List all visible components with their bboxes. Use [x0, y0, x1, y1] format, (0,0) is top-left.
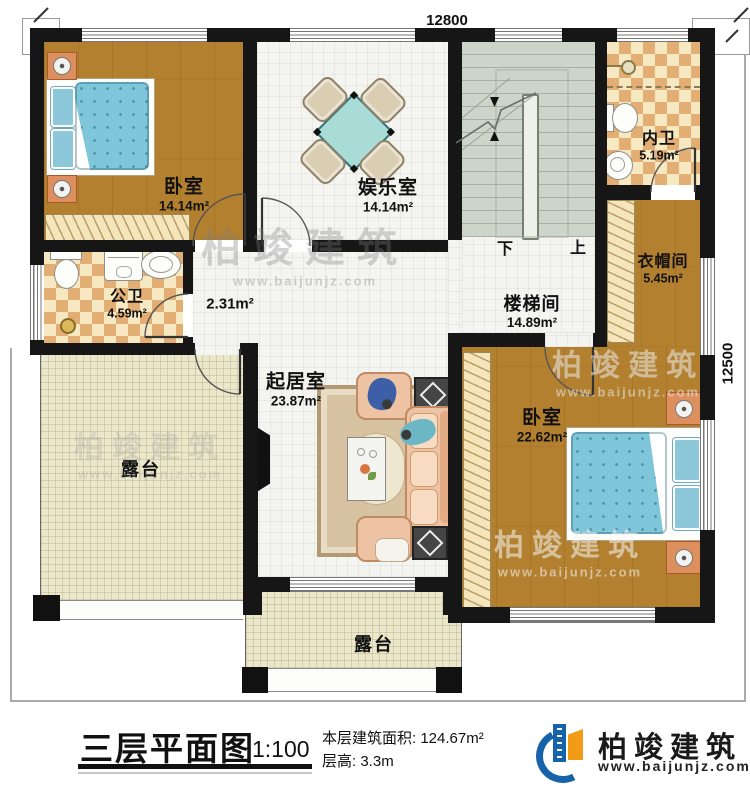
washer-drum	[116, 266, 132, 278]
wardrobe-cloakroom	[607, 200, 635, 343]
wall-segment	[448, 333, 545, 347]
room-label-entertainment: 娱乐室 14.14m²	[358, 177, 418, 214]
pillow	[673, 438, 701, 482]
washing-machine	[104, 247, 143, 281]
terrace-left-parapet	[40, 600, 243, 620]
column	[33, 595, 60, 621]
lamp-icon	[417, 530, 444, 557]
room-label-public-bath: 公卫 4.59m²	[107, 289, 147, 322]
room-label-inner-bath: 内卫 5.19m²	[639, 131, 679, 164]
wall-segment	[695, 185, 715, 200]
cup-icon	[369, 450, 377, 458]
wall-segment	[448, 607, 510, 623]
floor-passage	[448, 240, 462, 347]
coffee-table	[347, 437, 386, 501]
cup-icon	[357, 448, 365, 456]
floor-height-line: 层高: 3.3m	[322, 750, 484, 773]
wall-segment	[593, 333, 607, 347]
wall-segment	[30, 28, 44, 265]
window	[30, 265, 44, 340]
wardrobe-bedroom-2	[463, 352, 491, 610]
floor-area-line: 本层建筑面积: 124.67m²	[322, 727, 484, 750]
floor-info: 本层建筑面积: 124.67m² 层高: 3.3m	[322, 727, 484, 773]
wall-segment	[243, 577, 290, 592]
lamp-icon	[419, 381, 446, 408]
drawing-scale: 1:100	[252, 736, 310, 763]
mattress	[75, 82, 149, 170]
boundary-line-right	[744, 55, 746, 702]
wall-segment	[183, 252, 193, 294]
title-underline	[78, 764, 312, 769]
stair-down-label: 下	[497, 235, 513, 259]
lamp-icon	[675, 549, 693, 567]
floor-terrace-bottom	[245, 592, 462, 668]
washer-lid	[108, 251, 139, 258]
room-label-cloakroom: 衣帽间 5.45m²	[637, 254, 688, 287]
sink	[604, 151, 633, 180]
window	[617, 28, 688, 42]
brand-website: www.baijunjz.com	[598, 758, 750, 774]
wall-segment	[30, 240, 195, 252]
nightstand	[666, 541, 702, 574]
nightstand	[666, 392, 702, 425]
window	[290, 28, 415, 42]
room-label-living: 起居室 23.87m²	[266, 371, 326, 408]
stair-up-label: 上	[570, 234, 586, 258]
floor-plan: 卧室 14.14m² 娱乐室 14.14m² 内卫 5.19m² 衣帽间 5.4…	[0, 0, 750, 789]
window	[700, 258, 715, 355]
sink-basin	[610, 157, 625, 172]
room-label-bedroom-1: 卧室 14.14m²	[159, 176, 209, 213]
lamp-icon	[53, 180, 71, 198]
nightstand	[47, 175, 77, 203]
window	[290, 577, 415, 592]
title-underline	[78, 772, 312, 774]
room-label-stairwell: 楼梯间 14.89m²	[504, 294, 561, 330]
room-label-bedroom-2: 卧室 22.62m²	[517, 407, 567, 444]
window	[700, 420, 715, 530]
lamp-icon	[675, 400, 693, 418]
brand-logo-icon	[536, 720, 592, 776]
window	[510, 607, 655, 623]
sofa-cushion	[410, 451, 438, 487]
boundary-line-bottom	[10, 700, 746, 702]
logo-building-icon	[553, 724, 566, 762]
toilet-bowl	[612, 103, 638, 133]
wall-segment	[415, 577, 462, 592]
window	[82, 28, 207, 42]
wall-segment	[655, 607, 715, 623]
dimension-top: 12800	[407, 12, 487, 29]
room-label-terrace-bottom: 露台	[354, 635, 394, 656]
wall-segment	[595, 185, 651, 200]
pillow	[51, 87, 75, 127]
nightstand	[47, 52, 77, 80]
floor-drain-icon	[60, 318, 76, 334]
boundary-line-left	[10, 348, 12, 702]
wall-segment	[448, 28, 462, 240]
wall-segment	[243, 592, 262, 615]
wall-segment	[243, 240, 264, 252]
pillow	[51, 129, 75, 169]
bed-bedroom-2	[566, 427, 705, 541]
leaf-icon	[368, 472, 376, 480]
floor-bedroom2-door	[545, 333, 593, 347]
bed-bedroom-1	[46, 78, 155, 176]
wall-segment	[243, 28, 257, 240]
toilet-bowl	[54, 259, 79, 289]
wall-segment	[243, 343, 258, 592]
wall-segment	[700, 28, 715, 258]
mattress	[571, 432, 667, 534]
room-label-hallway: 2.31m²	[206, 295, 254, 312]
wall-segment	[30, 343, 195, 355]
ottoman	[375, 538, 409, 562]
wall-segment	[700, 355, 715, 420]
person-head	[400, 428, 413, 441]
pillow	[673, 486, 701, 530]
sink-basin	[149, 256, 173, 273]
wall-segment	[562, 28, 617, 42]
column	[242, 667, 268, 693]
wall-segment	[312, 240, 448, 252]
shower-divider	[607, 86, 700, 88]
terrace-bottom-parapet	[245, 668, 460, 692]
column	[436, 667, 462, 693]
page-title: 三层平面图	[80, 722, 255, 770]
window	[495, 28, 562, 42]
lamp-icon	[53, 57, 71, 75]
sofa-cushion	[410, 489, 438, 525]
room-label-terrace-left: 露台	[121, 460, 161, 481]
dimension-right: 12500	[720, 336, 737, 392]
sink	[141, 250, 181, 279]
shower-head-icon	[621, 60, 636, 75]
stair-rail	[522, 94, 539, 240]
side-table	[412, 526, 448, 560]
